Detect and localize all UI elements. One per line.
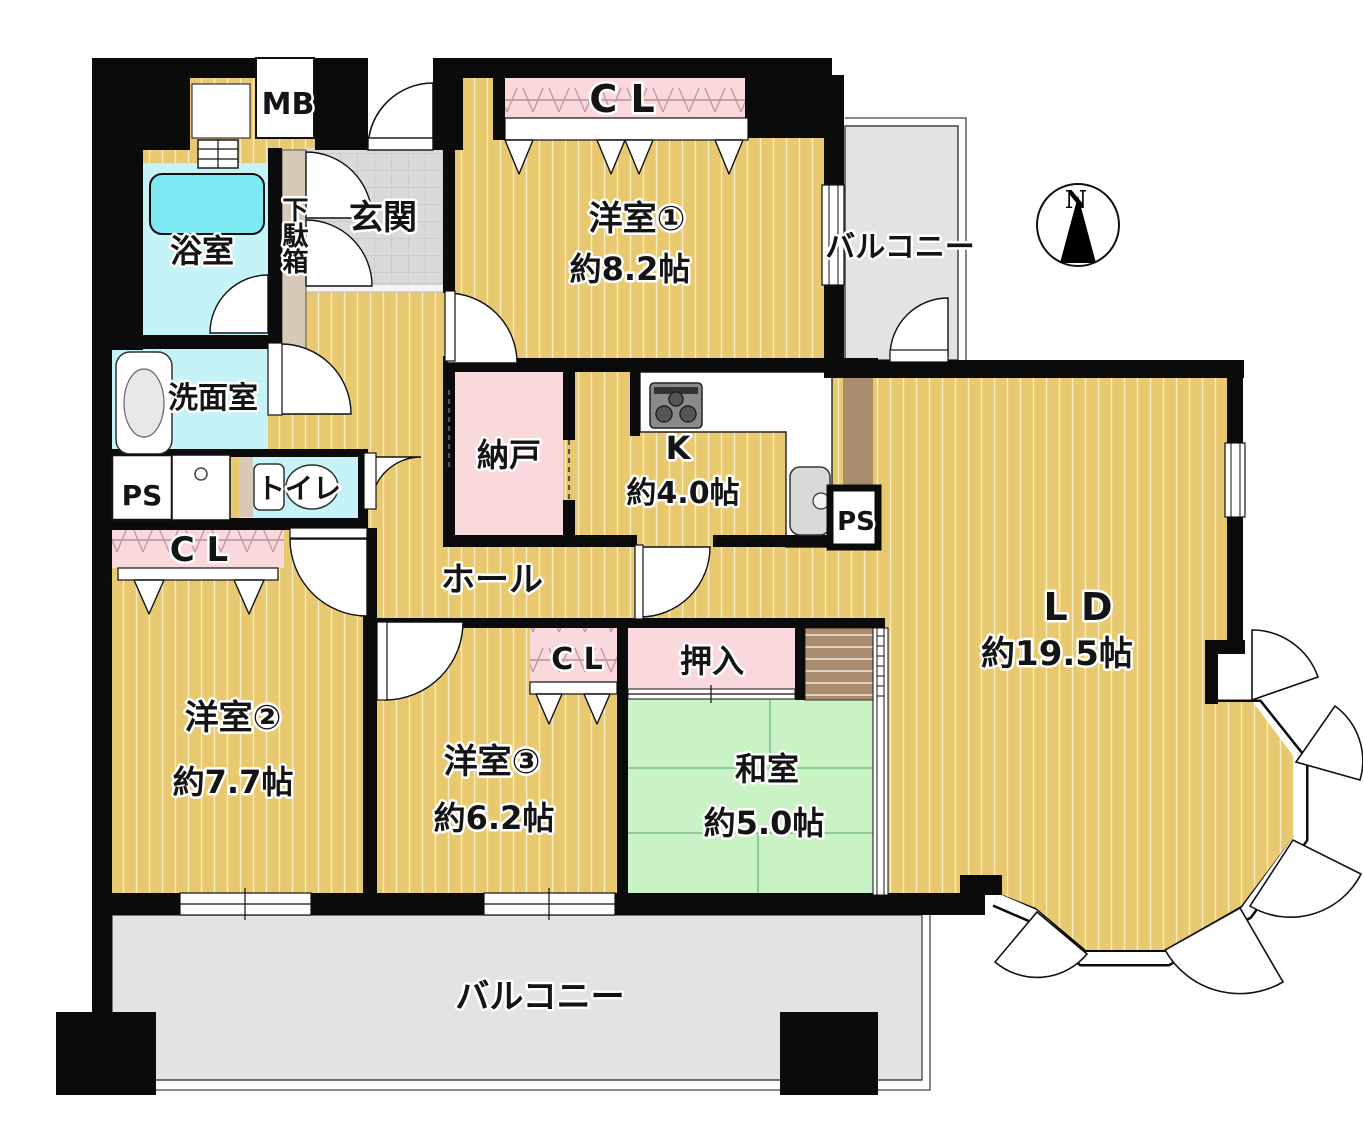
wall-ld-right-upper bbox=[1227, 375, 1243, 445]
ws1-size-label: 約8.2帖 bbox=[570, 250, 691, 288]
pillar-bottom-left bbox=[56, 1012, 156, 1095]
japanese-room-tatami bbox=[628, 695, 873, 895]
wall-storage-right-upper bbox=[563, 368, 575, 440]
wall-ld-step-v bbox=[1205, 654, 1218, 704]
closet-ws3-shelf bbox=[530, 682, 617, 694]
storage-room-label: 納戸 bbox=[477, 436, 541, 474]
bay-door-arc-1 bbox=[1252, 630, 1318, 700]
ws1-label: 洋室① bbox=[589, 199, 686, 239]
floor-plan-page: N MB 浴室 洗面室 トイレ PS C L 下駄箱 玄関 C L 洋室① 約8… bbox=[0, 0, 1363, 1142]
wall-kitchen-counter-left bbox=[630, 372, 640, 436]
toilet-counter-strip bbox=[240, 457, 253, 517]
oshiire-label: 押入 bbox=[680, 642, 744, 680]
hall-ld-door-leaf bbox=[635, 545, 643, 619]
ws2-size-label: 約7.7帖 bbox=[173, 763, 294, 801]
japanese-room-label: 和室 bbox=[735, 750, 799, 788]
wall-hall-ld-left bbox=[443, 535, 637, 547]
wall-entry-left-block bbox=[315, 58, 370, 150]
washroom-door-leaf bbox=[268, 343, 282, 415]
wall-bay-left-end bbox=[960, 875, 1002, 895]
wall-ws3-japanese-divider bbox=[617, 618, 628, 905]
kitchen-label: K bbox=[666, 429, 692, 467]
compass-north-label: N bbox=[1065, 185, 1087, 214]
ps-kitchen-label: PS bbox=[837, 507, 875, 537]
compass: N bbox=[1037, 184, 1119, 266]
closet-ws1-shelf bbox=[505, 118, 748, 140]
floor-plan-drawing: N MB 浴室 洗面室 トイレ PS C L 下駄箱 玄関 C L 洋室① 約8… bbox=[0, 0, 1363, 1142]
toilet-label: トイレ bbox=[257, 472, 341, 505]
pillar-bottom-right bbox=[780, 1012, 878, 1095]
tokonoma-step-cabinet bbox=[805, 628, 873, 700]
wall-hall-ld-right bbox=[713, 535, 832, 547]
entry-door-leaf bbox=[368, 138, 433, 150]
closet-ws3-label: C L bbox=[551, 642, 603, 677]
kitchen-size-label: 約4.0帖 bbox=[626, 476, 739, 511]
kitchen-cabinet-strip bbox=[843, 378, 873, 488]
shoe-cabinet-label: 下駄箱 bbox=[278, 196, 308, 274]
wall-storage-right-lower bbox=[563, 500, 575, 540]
ws3-label: 洋室③ bbox=[444, 742, 541, 782]
ld-size-label: 約19.5帖 bbox=[981, 634, 1133, 674]
washer-space bbox=[172, 455, 230, 520]
vanity-basin bbox=[124, 369, 164, 437]
washroom-label: 洗面室 bbox=[168, 381, 258, 416]
burner-3 bbox=[669, 392, 683, 406]
balcony-top-door-leaf bbox=[890, 350, 948, 362]
ps-left-label: PS bbox=[122, 479, 163, 512]
hall-label: ホール bbox=[441, 560, 543, 600]
washer-drain bbox=[195, 468, 207, 480]
wall-bath-bottom bbox=[112, 335, 282, 349]
wall-ws1-right-upper bbox=[824, 75, 844, 185]
wall-ld-step-h bbox=[1205, 640, 1245, 654]
ws2-label: 洋室② bbox=[185, 698, 282, 738]
ws3-size-label: 約6.2帖 bbox=[434, 799, 555, 837]
entrance-label: 玄関 bbox=[349, 198, 417, 238]
balcony-top-label: バルコニー bbox=[825, 230, 974, 265]
closet-hall-label: C L bbox=[170, 530, 228, 570]
balcony-bottom-label: バルコニー bbox=[455, 977, 624, 1017]
wall-ld-right-lower bbox=[1227, 515, 1243, 647]
wall-closet-ws1-left-stub bbox=[493, 58, 505, 140]
ws1-door-leaf bbox=[445, 291, 455, 361]
ws3-door-leaf bbox=[377, 622, 387, 700]
japanese-room-size-label: 約5.0帖 bbox=[704, 804, 825, 842]
toilet-door-leaf bbox=[364, 453, 376, 509]
burner-2 bbox=[680, 406, 696, 422]
bathtub bbox=[150, 174, 264, 234]
bath-service-recess bbox=[192, 84, 250, 138]
wall-ws1-right-lower bbox=[824, 285, 844, 363]
ld-label: L D bbox=[1044, 585, 1113, 629]
bathroom-label: 浴室 bbox=[170, 232, 234, 270]
closet-ws1-label: C L bbox=[589, 77, 654, 121]
burner-1 bbox=[656, 406, 672, 422]
window-ld-right bbox=[1225, 443, 1245, 517]
ws2-door-leaf bbox=[290, 528, 367, 538]
wall-ld-top bbox=[824, 360, 1244, 378]
wall-oshiire-right bbox=[795, 618, 805, 700]
japanese-room-sliding-door bbox=[873, 628, 888, 895]
meter-box-label: MB bbox=[262, 87, 315, 122]
wall-bath-left-shaft bbox=[92, 150, 143, 350]
wall-top-right-block bbox=[745, 58, 832, 138]
wall-ws1-left bbox=[443, 75, 455, 293]
